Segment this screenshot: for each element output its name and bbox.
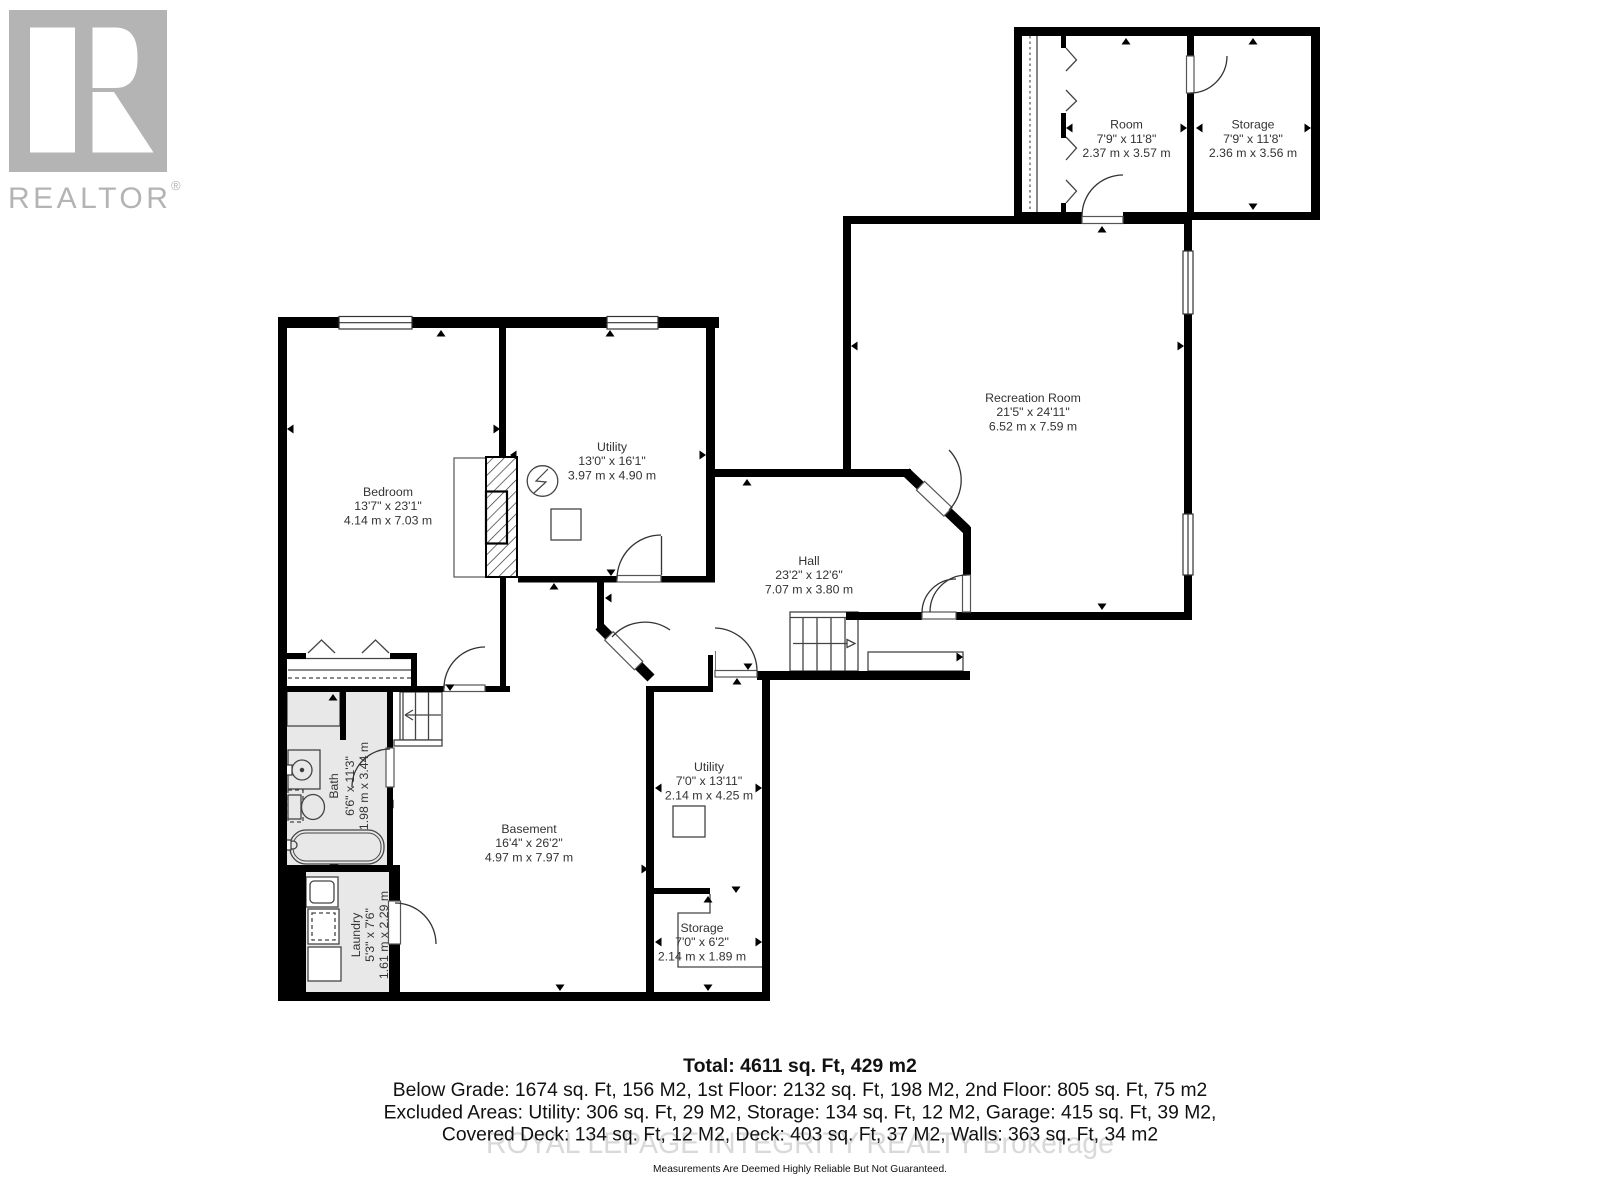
svg-text:Hall: Hall	[798, 554, 819, 568]
svg-text:Utility: Utility	[694, 760, 725, 774]
svg-text:7'0" x 13'11": 7'0" x 13'11"	[676, 774, 743, 788]
svg-text:Storage: Storage	[680, 921, 723, 935]
svg-text:Bedroom: Bedroom	[363, 485, 413, 499]
svg-text:Laundry: Laundry	[349, 912, 363, 957]
svg-text:2.36 m x 3.56 m: 2.36 m x 3.56 m	[1209, 146, 1297, 160]
svg-text:23'2" x 12'6": 23'2" x 12'6"	[775, 568, 842, 582]
svg-text:2.37 m x 3.57 m: 2.37 m x 3.57 m	[1082, 146, 1170, 160]
svg-text:21'5" x 24'11": 21'5" x 24'11"	[996, 405, 1069, 419]
svg-text:Below Grade: 1674 sq. Ft, 156: Below Grade: 1674 sq. Ft, 156 M2, 1st Fl…	[393, 1080, 1208, 1101]
svg-text:2.14 m x 1.89 m: 2.14 m x 1.89 m	[658, 950, 746, 964]
svg-text:Room: Room	[1110, 117, 1143, 131]
svg-text:2.14 m x 4.25 m: 2.14 m x 4.25 m	[665, 789, 753, 803]
svg-text:Excluded Areas: Utility: 306 s: Excluded Areas: Utility: 306 sq. Ft, 29 …	[384, 1103, 1217, 1124]
svg-text:16'4" x 26'2": 16'4" x 26'2"	[495, 836, 562, 850]
svg-text:4.97 m x 7.97 m: 4.97 m x 7.97 m	[485, 851, 573, 865]
svg-text:13'0" x 16'1": 13'0" x 16'1"	[578, 454, 645, 468]
svg-text:Recreation Room: Recreation Room	[985, 391, 1081, 405]
svg-text:7'9" x 11'8": 7'9" x 11'8"	[1223, 132, 1283, 146]
svg-text:7'9" x 11'8": 7'9" x 11'8"	[1097, 132, 1157, 146]
svg-text:Total: 4611 sq. Ft, 429 m2: Total: 4611 sq. Ft, 429 m2	[683, 1055, 917, 1077]
svg-text:Measurements Are Deemed Highly: Measurements Are Deemed Highly Reliable …	[653, 1164, 947, 1175]
svg-text:Bath: Bath	[327, 773, 341, 798]
svg-text:3.97 m x 4.90 m: 3.97 m x 4.90 m	[568, 469, 656, 483]
svg-text:4.14 m x 7.03 m: 4.14 m x 7.03 m	[344, 514, 432, 528]
svg-text:Storage: Storage	[1231, 117, 1274, 131]
svg-text:5'3" x 7'6": 5'3" x 7'6"	[363, 908, 377, 962]
svg-text:Covered Deck: 134 sq. Ft, 12 M: Covered Deck: 134 sq. Ft, 12 M2, Deck: 4…	[442, 1125, 1158, 1146]
svg-text:1.61 m x 2.29 m: 1.61 m x 2.29 m	[377, 891, 391, 979]
svg-text:7'0" x 6'2": 7'0" x 6'2"	[675, 935, 729, 949]
svg-text:13'7" x 23'1": 13'7" x 23'1"	[354, 499, 421, 513]
svg-text:1.98 m x 3.44 m: 1.98 m x 3.44 m	[357, 742, 371, 830]
svg-text:6.52 m x 7.59 m: 6.52 m x 7.59 m	[989, 420, 1077, 434]
svg-text:6'6" x 11'3": 6'6" x 11'3"	[343, 756, 357, 816]
svg-text:Basement: Basement	[501, 822, 557, 836]
svg-text:7.07 m x 3.80 m: 7.07 m x 3.80 m	[765, 583, 853, 597]
svg-text:REALTOR: REALTOR	[8, 182, 171, 215]
svg-text:Utility: Utility	[597, 440, 628, 454]
svg-text:®: ®	[171, 178, 181, 193]
